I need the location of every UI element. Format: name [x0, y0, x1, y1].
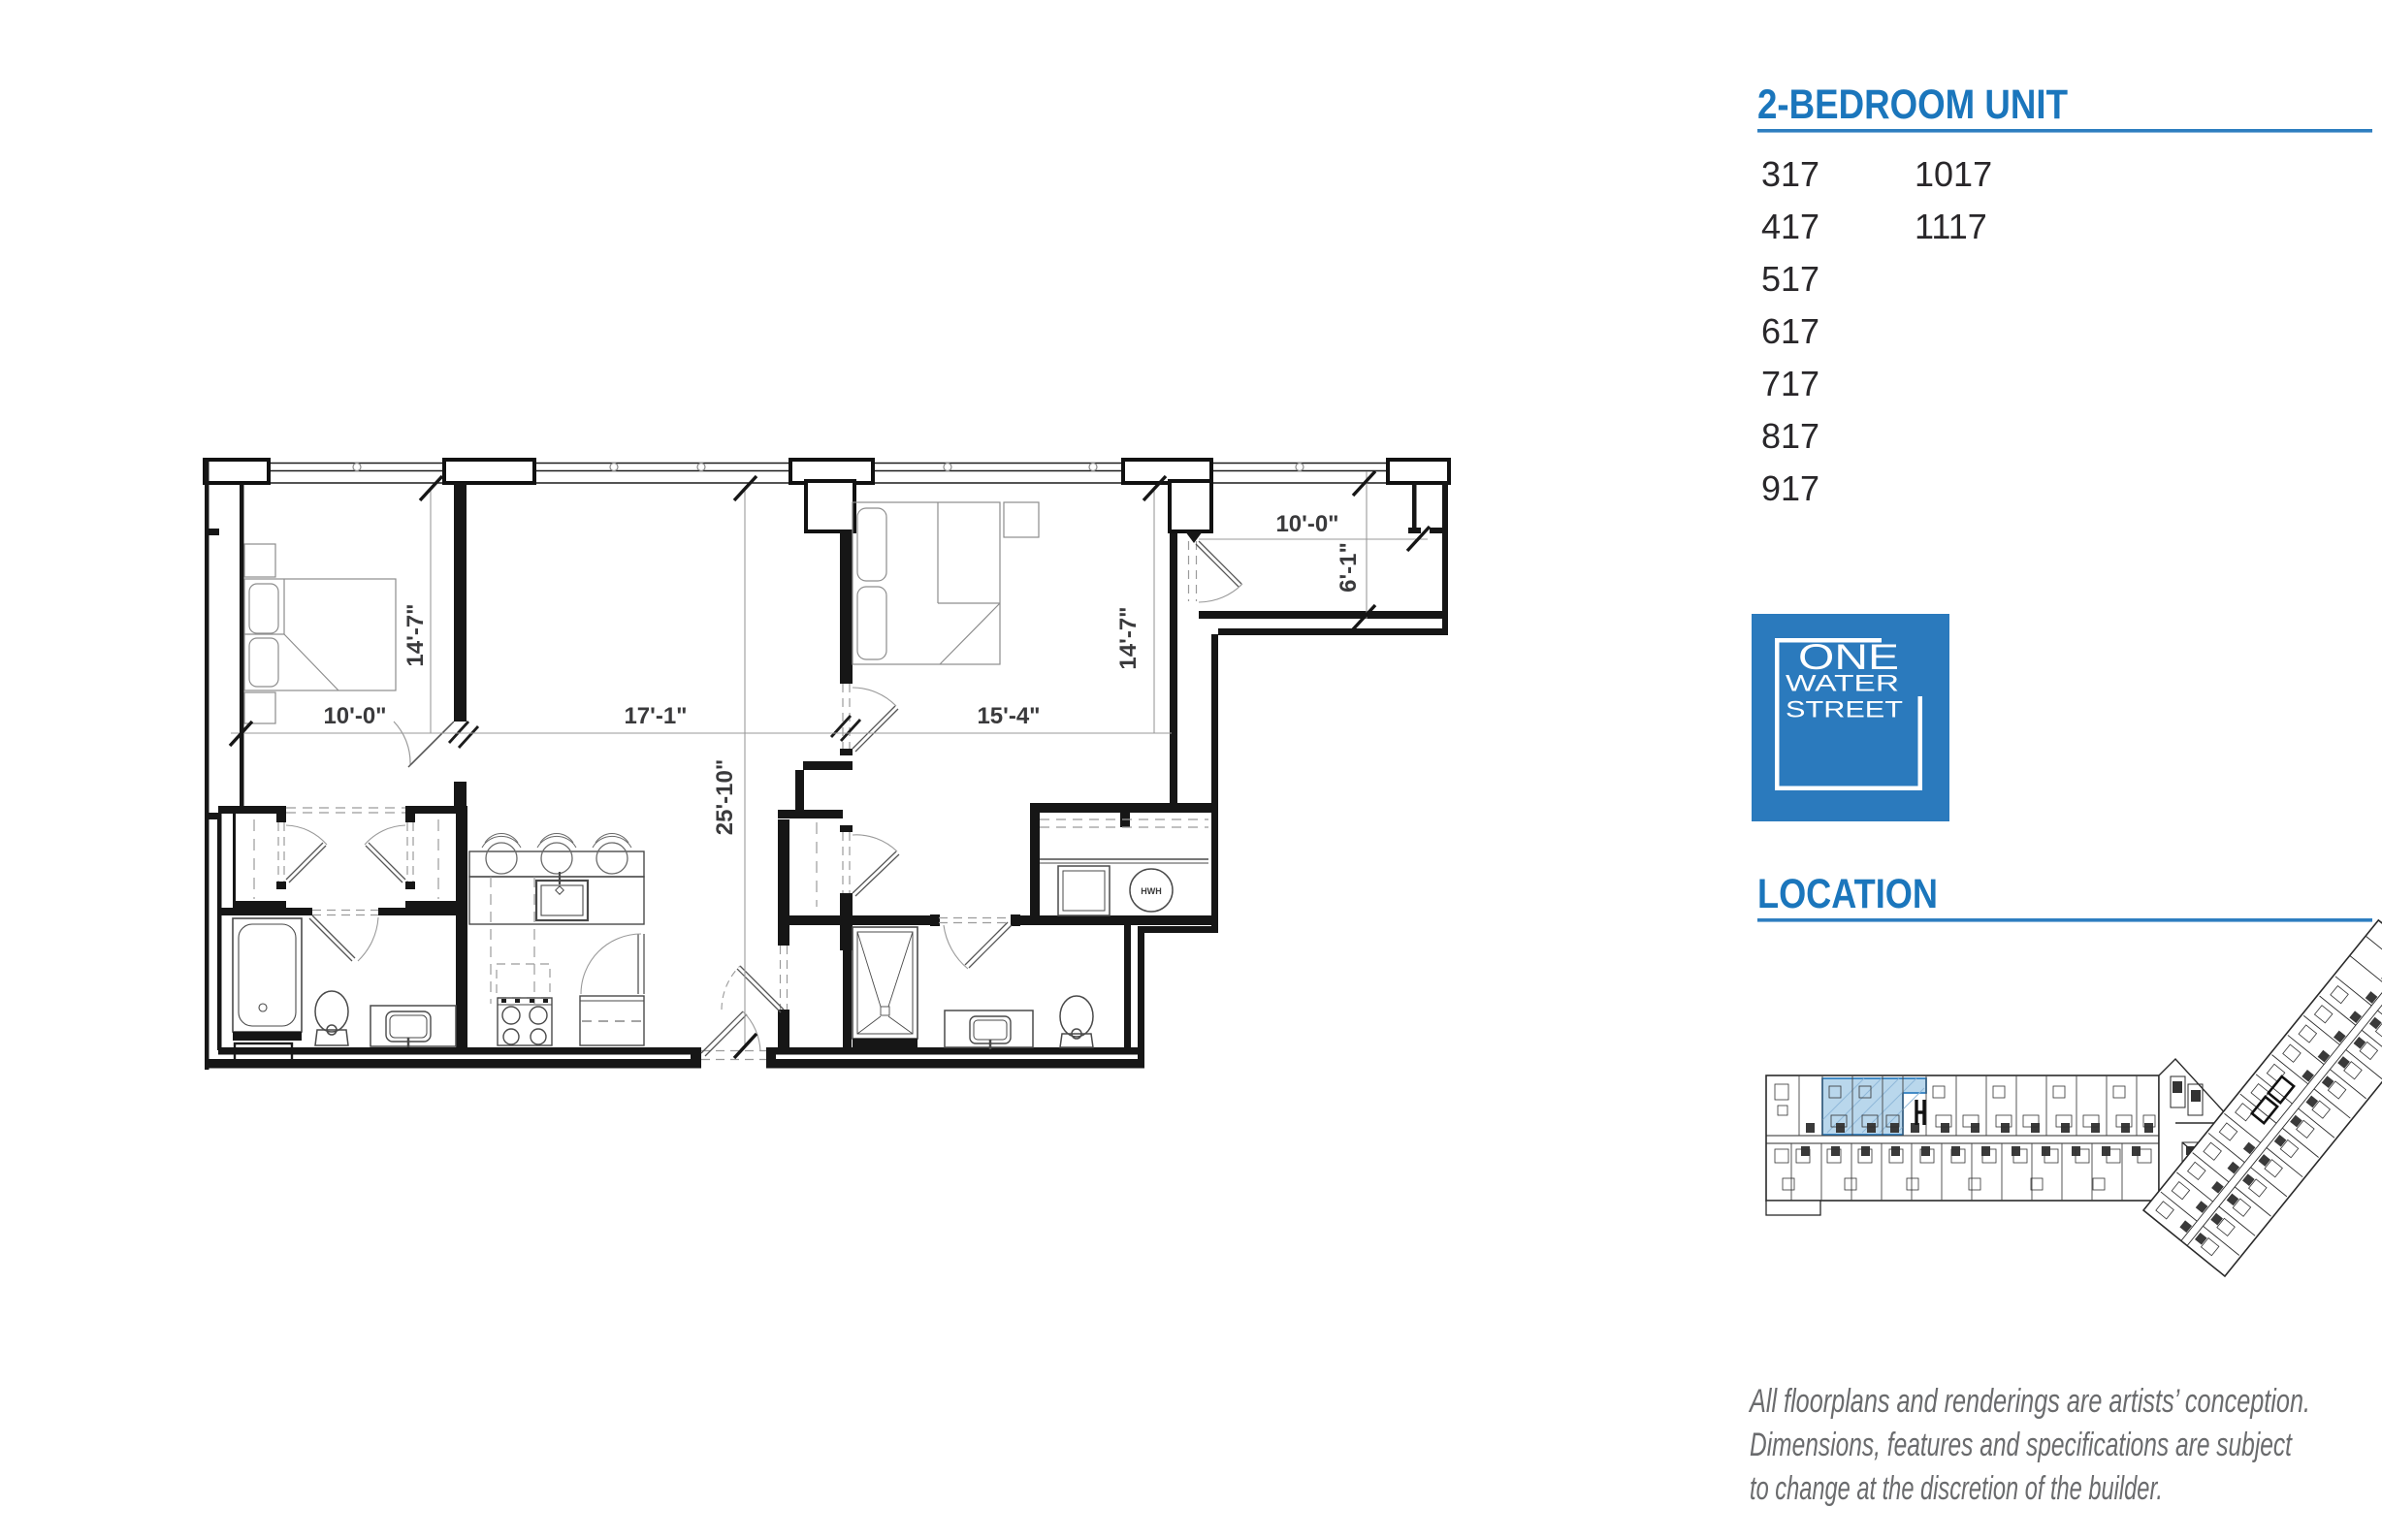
svg-text:10'-0": 10'-0" — [323, 703, 386, 729]
svg-text:to change at the discretion of: to change at the discretion of the build… — [1750, 1470, 2163, 1507]
svg-text:917: 917 — [1761, 468, 1819, 508]
svg-text:1117: 1117 — [1915, 207, 1987, 246]
svg-text:1017: 1017 — [1915, 154, 1992, 194]
svg-text:All floorplans and renderings: All floorplans and renderings are artist… — [1749, 1383, 2310, 1420]
svg-text:417: 417 — [1761, 207, 1819, 246]
svg-text:LOCATION: LOCATION — [1757, 871, 1938, 917]
svg-text:6'-1": 6'-1" — [1336, 542, 1362, 593]
svg-text:817: 817 — [1761, 416, 1819, 456]
svg-text:2-BEDROOM UNIT: 2-BEDROOM UNIT — [1757, 81, 2068, 128]
svg-text:15'-4": 15'-4" — [977, 703, 1040, 729]
svg-text:14'-7": 14'-7" — [1115, 606, 1142, 669]
svg-text:317: 317 — [1761, 154, 1819, 194]
svg-text:14'-7": 14'-7" — [402, 603, 429, 666]
svg-text:STREET: STREET — [1786, 697, 1903, 723]
svg-text:HWH: HWH — [1141, 886, 1162, 896]
svg-text:17'-1": 17'-1" — [624, 703, 687, 729]
svg-text:WATER: WATER — [1786, 671, 1899, 697]
svg-text:25'-10": 25'-10" — [712, 759, 738, 835]
svg-text:Dimensions, features and speci: Dimensions, features and specifications … — [1750, 1427, 2293, 1463]
svg-text:10'-0": 10'-0" — [1275, 511, 1338, 537]
svg-text:617: 617 — [1761, 311, 1819, 351]
svg-text:717: 717 — [1761, 364, 1819, 403]
svg-text:517: 517 — [1761, 259, 1819, 299]
